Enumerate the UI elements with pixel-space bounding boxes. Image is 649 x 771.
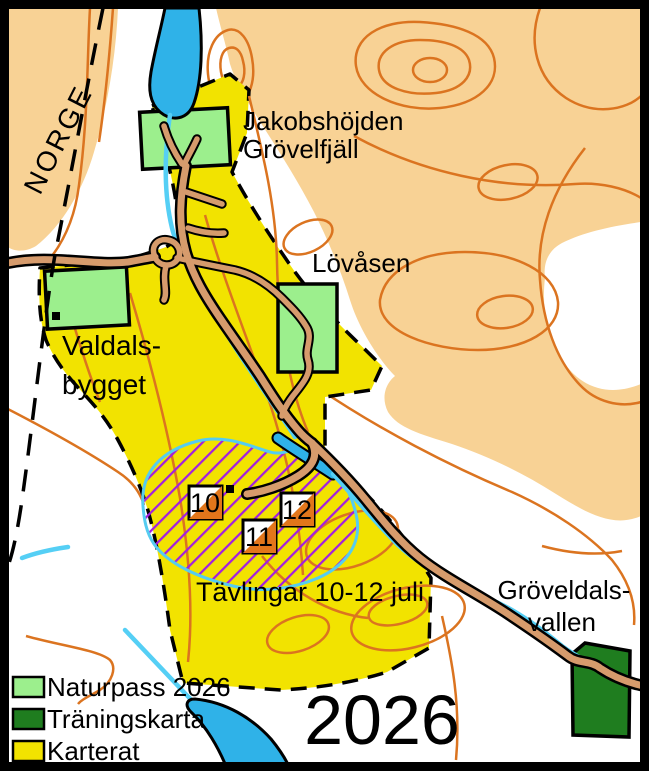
river-north <box>150 8 202 118</box>
lovasen-label: Lövåsen <box>312 248 410 278</box>
control-number: 10 <box>190 488 220 518</box>
valdalsbygget-label-line2: bygget <box>62 369 146 400</box>
jakobshojden-label-line1: Jakobshöjden <box>243 106 403 136</box>
legend-swatch-traningskarta <box>13 709 44 729</box>
legend-label: Träningskarta <box>47 704 206 734</box>
legend-swatch-karterat <box>13 741 44 761</box>
groveldalsvallen-label-line2: vallen <box>528 607 596 637</box>
legend: Naturpass 2026 Träningskarta Karterat <box>13 672 231 766</box>
trail-loop-stub <box>164 266 166 300</box>
legend-swatch-naturpass <box>13 677 44 697</box>
legend-item-traningskarta: Träningskarta <box>13 704 206 734</box>
control-marker-12: 12 <box>281 493 314 526</box>
building-square <box>226 485 234 493</box>
legend-label: Naturpass 2026 <box>47 672 231 702</box>
map-screenshot: 10 11 12 NORGE Jakobshöjden Grövelfjäll … <box>0 0 649 771</box>
contour-line <box>542 546 622 553</box>
control-marker-10: 10 <box>189 486 222 519</box>
control-number: 12 <box>282 495 312 525</box>
map-canvas: 10 11 12 NORGE Jakobshöjden Grövelfjäll … <box>0 0 649 771</box>
year-watermark: 2026 <box>304 681 460 759</box>
valdalsbygget-label-line1: Valdals- <box>62 330 161 361</box>
groveldalsvallen-label-line1: Gröveldals- <box>498 575 631 605</box>
building-square <box>52 312 60 320</box>
event-label: Tävlingar 10-12 juli <box>196 577 424 607</box>
control-number: 11 <box>245 522 273 552</box>
jakobshojden-label-line2: Grövelfjäll <box>243 134 359 164</box>
legend-item-naturpass: Naturpass 2026 <box>13 672 231 702</box>
stream-west-fragment <box>22 547 68 558</box>
control-marker-11: 11 <box>243 520 276 553</box>
legend-item-karterat: Karterat <box>13 736 140 766</box>
legend-label: Karterat <box>47 736 140 766</box>
